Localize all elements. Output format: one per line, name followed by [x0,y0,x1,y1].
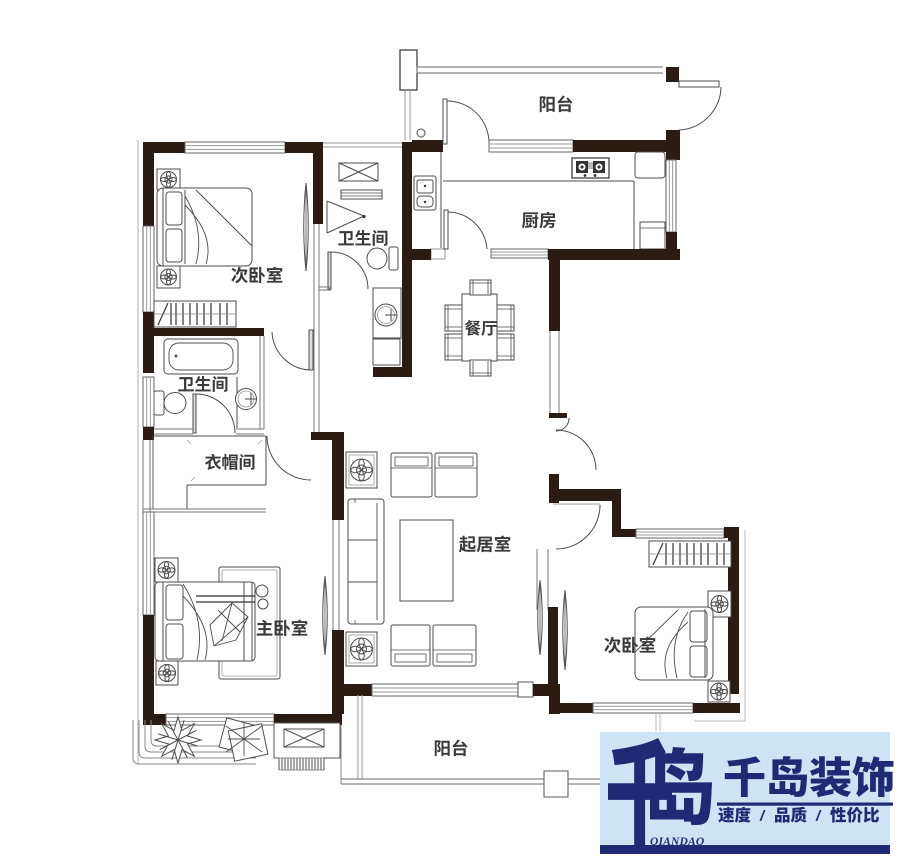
svg-text:QIANDAO: QIANDAO [650,836,704,848]
